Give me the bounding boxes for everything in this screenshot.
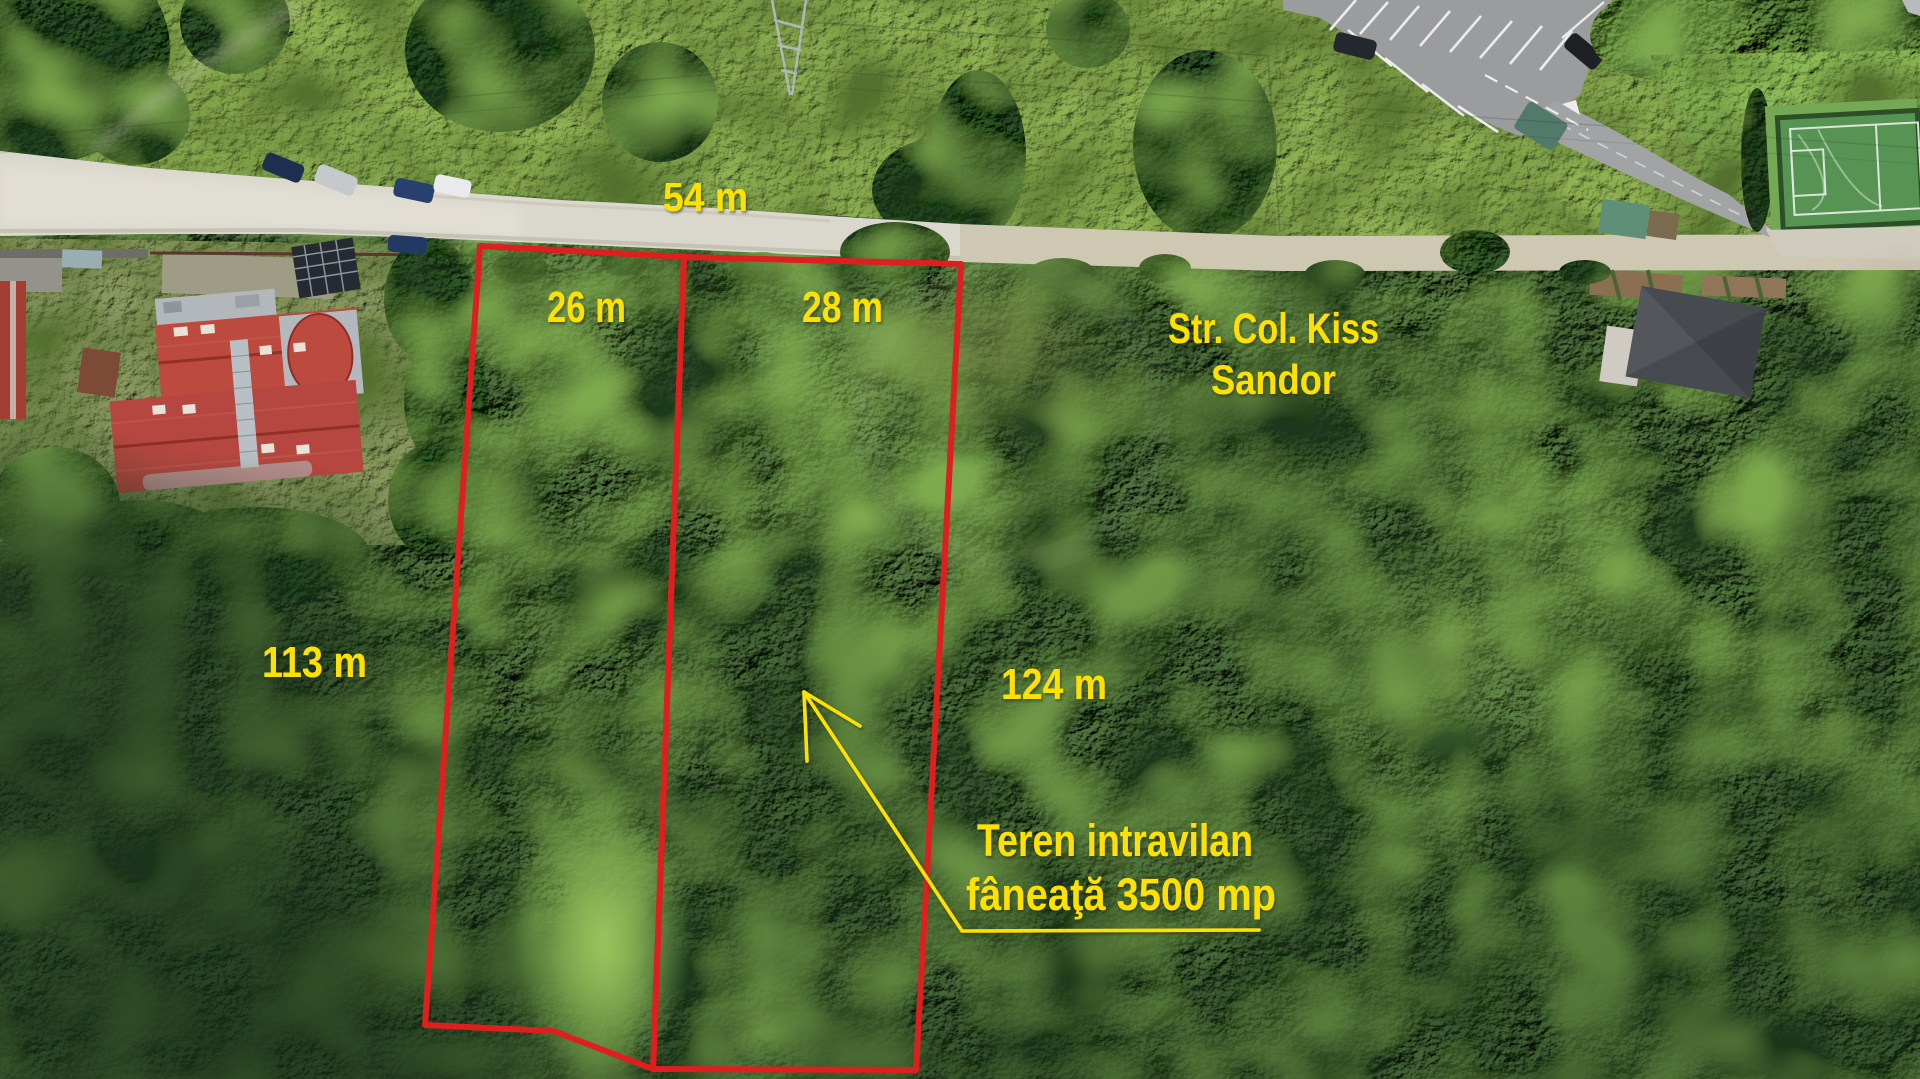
svg-text:Teren intravilan: Teren intravilan [977,815,1253,866]
svg-text:fâneaţă 3500 mp: fâneaţă 3500 mp [966,869,1276,920]
svg-text:28 m: 28 m [802,283,883,332]
svg-text:124 m: 124 m [1001,660,1107,709]
svg-text:Str. Col. Kiss: Str. Col. Kiss [1168,305,1379,353]
svg-text:113 m: 113 m [262,638,367,687]
svg-text:Sandor: Sandor [1211,356,1336,403]
svg-text:54 m: 54 m [663,174,748,220]
svg-text:26 m: 26 m [547,283,626,332]
